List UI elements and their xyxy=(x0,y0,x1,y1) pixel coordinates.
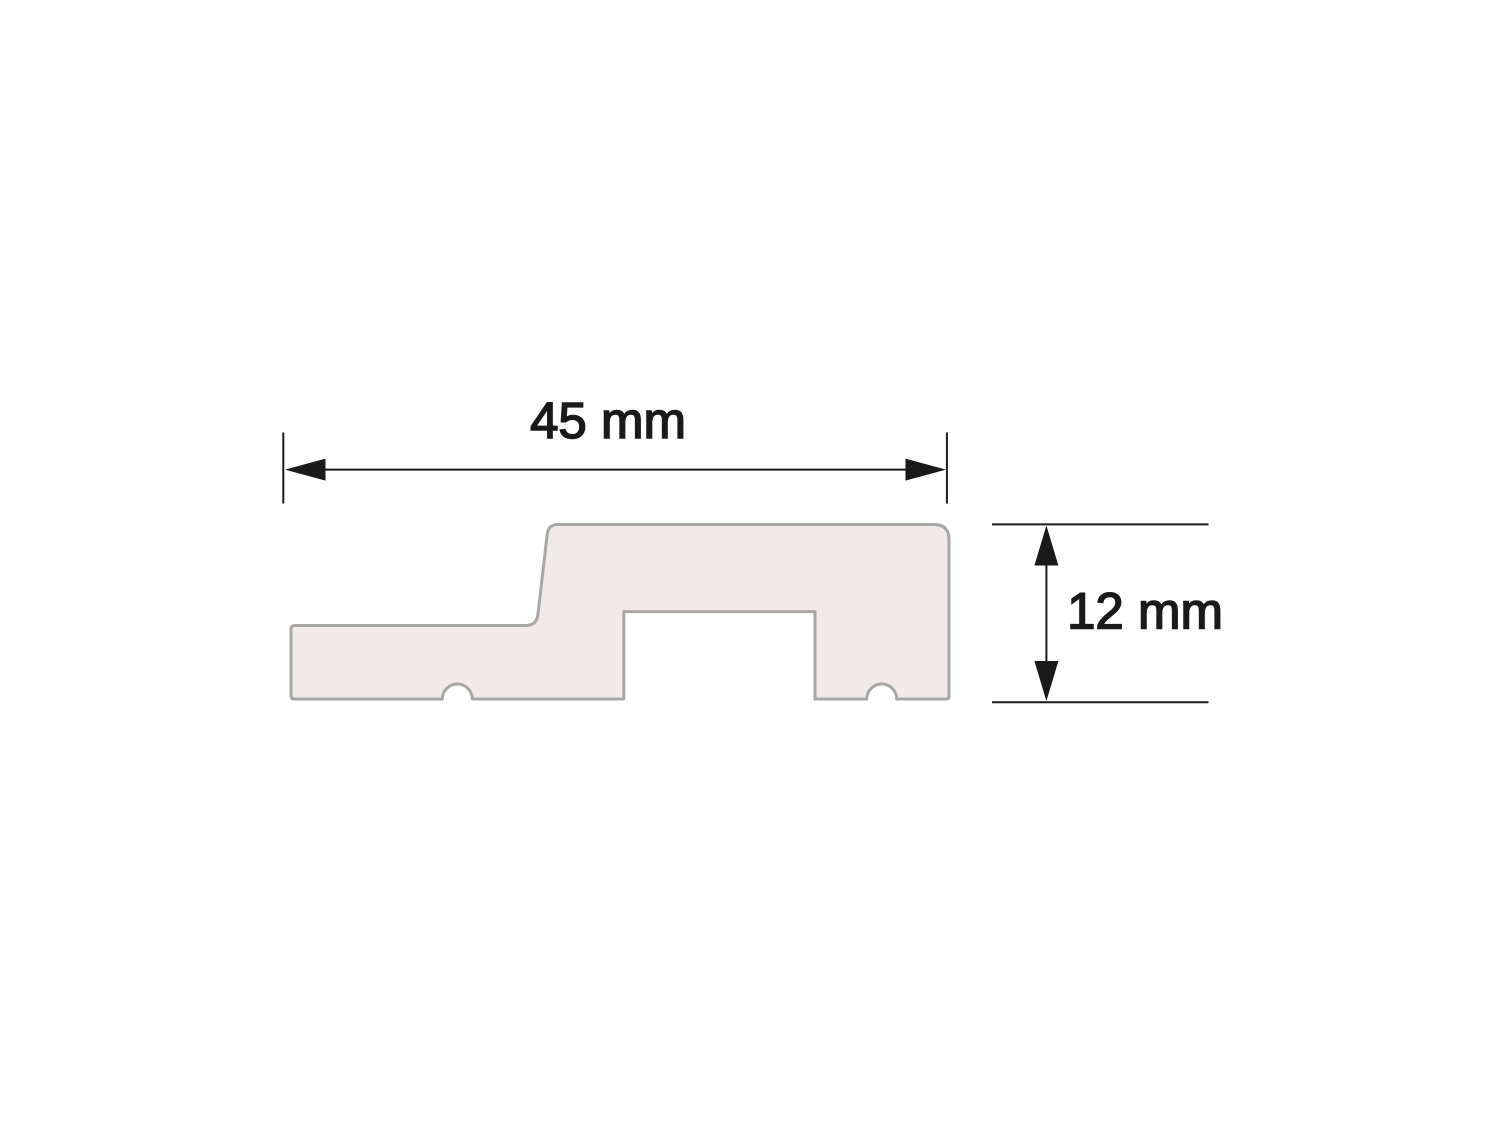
svg-text:12 mm: 12 mm xyxy=(1067,583,1223,640)
svg-text:45 mm: 45 mm xyxy=(530,392,686,449)
